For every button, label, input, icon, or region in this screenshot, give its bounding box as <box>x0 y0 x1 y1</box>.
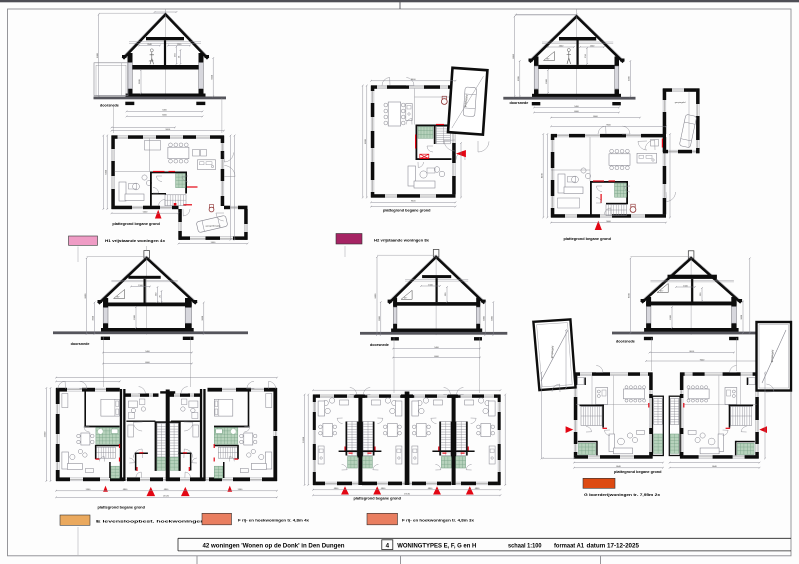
svg-text:45°: 45° <box>660 291 663 293</box>
svg-text:45°: 45° <box>546 59 549 61</box>
svg-text:45°: 45° <box>404 297 407 299</box>
svg-text:H2 vrijstaande woningen 8x: H2 vrijstaande woningen 8x <box>374 239 429 243</box>
svg-text:WONINGTYPES E, F, G en H: WONINGTYPES E, F, G en H <box>397 542 477 549</box>
svg-text:plattegrond begane grond: plattegrond begane grond <box>564 237 612 241</box>
svg-text:datum 17-12-2025: datum 17-12-2025 <box>587 542 640 549</box>
svg-text:G boerderijwoningen tr- 7,95m: G boerderijwoningen tr- 7,95m 2x <box>584 493 660 497</box>
svg-text:garage/berging: garage/berging <box>206 225 221 228</box>
svg-text:F rij- en hoekwoningen tr. 4,8: F rij- en hoekwoningen tr. 4,8m 3x <box>402 518 474 522</box>
svg-text:doorsnede: doorsnede <box>100 104 119 108</box>
svg-text:doorsnede: doorsnede <box>71 342 90 346</box>
svg-text:19130: 19130 <box>404 493 411 495</box>
svg-text:plattegrond begane grond: plattegrond begane grond <box>112 222 160 226</box>
svg-text:10130: 10130 <box>303 436 305 443</box>
svg-text:gespiegeld: gespiegeld <box>675 102 686 104</box>
svg-text:42 woningen 'Wonen op de Donk': 42 woningen 'Wonen op de Donk' in Den Du… <box>203 542 345 549</box>
svg-text:F rij- en hoekwoningen tr. 4,8: F rij- en hoekwoningen tr. 4,8m 4x <box>238 518 309 522</box>
svg-text:H1 vrijstaande woningen 4x: H1 vrijstaande woningen 4x <box>105 239 165 243</box>
svg-text:formaat A1: formaat A1 <box>554 542 585 549</box>
svg-text:E levensloopbest. hoekwoninge: E levensloopbest. hoekwoningen 4x <box>96 519 214 523</box>
svg-text:plattegrond begane grond: plattegrond begane grond <box>98 506 146 510</box>
svg-text:schaal 1:100: schaal 1:100 <box>508 542 542 549</box>
svg-text:doorsnede: doorsnede <box>370 343 389 347</box>
svg-text:plattegrond begane grond: plattegrond begane grond <box>614 470 662 474</box>
svg-text:45°: 45° <box>116 297 119 299</box>
svg-text:21520: 21520 <box>163 495 170 497</box>
svg-text:4: 4 <box>386 542 390 549</box>
svg-text:11300: 11300 <box>45 431 47 437</box>
svg-text:doorsnede: doorsnede <box>510 101 529 105</box>
svg-text:plattegrond begane grond: plattegrond begane grond <box>354 496 402 500</box>
svg-text:plattegrond begane grond: plattegrond begane grond <box>383 209 431 213</box>
svg-text:doorsnede: doorsnede <box>616 340 635 344</box>
